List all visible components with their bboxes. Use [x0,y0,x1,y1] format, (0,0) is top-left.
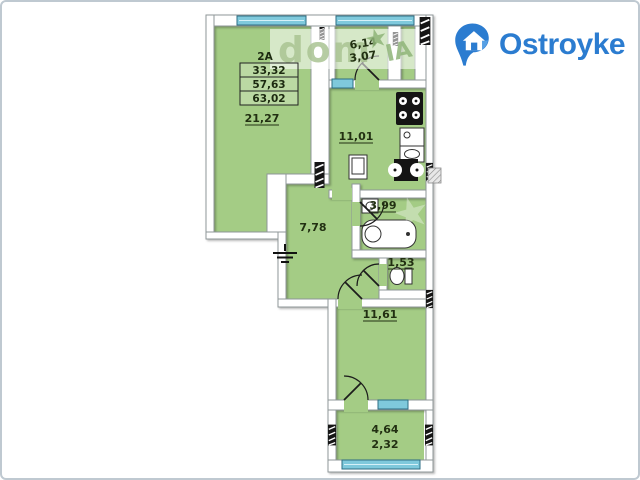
toilet-icon [390,268,412,285]
wall-segment [278,232,286,307]
hatch-mark [420,17,431,45]
unit-label: 2А [257,51,273,63]
door-opening [352,202,360,226]
hatch-mark [315,162,325,188]
door-opening [332,188,352,200]
wall-segment [328,299,336,472]
door-opening [344,398,368,412]
window [378,400,408,409]
watermark-ria-text: IA [383,36,414,67]
window [332,79,353,88]
fridge-icon [349,155,367,179]
brand-name: Ostroyke [499,28,625,62]
hatch-mark [426,290,433,308]
door-opening [379,264,387,286]
wall-segment [379,290,433,299]
room-label-living: 21,27 [245,112,280,125]
unit-stat-usable: 57,63 [252,79,285,91]
room-label-wc: 1,53 [387,256,414,269]
wall-segment [206,15,214,239]
wall-segment [267,174,286,232]
unit-stat-living: 33,32 [252,65,285,77]
room-hall [286,184,352,299]
hatch-mark [425,425,433,446]
room-label-hall: 7,78 [299,221,326,234]
room-label-bedroom: 11,61 [363,308,398,321]
floor-plan: dom ★ 2А 33,32 57,63 63,02 21,27 11,01 7… [2,2,640,480]
duct-shaft [428,168,441,183]
listing-image: dom ★ 2А 33,32 57,63 63,02 21,27 11,01 7… [0,0,640,480]
room-label-loggia-bottom-reduced: 2,32 [371,438,398,451]
room-label-kitchen: 11,01 [339,130,374,143]
door-opening [355,78,379,90]
room-label-loggia-bottom-full: 4,64 [371,423,398,436]
unit-stat-total: 63,02 [252,93,285,105]
hatch-mark [328,425,336,446]
door-opening [338,297,362,309]
kitchen-sink-icon [400,128,424,162]
stove-icon [396,92,423,125]
ostroyke-logo: Ostroyke [452,20,625,70]
room-label-bathroom: 3,99 [369,199,396,212]
wall-segment [206,232,286,239]
wall-segment [278,299,328,307]
house-pin-icon [452,22,492,68]
